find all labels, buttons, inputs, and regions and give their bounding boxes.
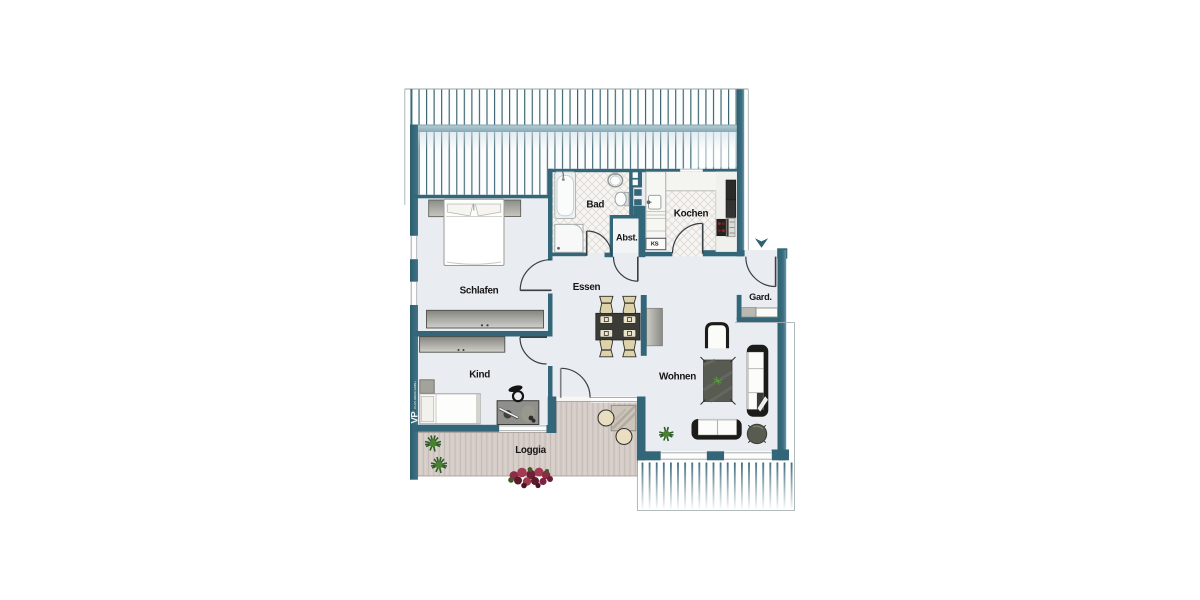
svg-text:Loggia: Loggia: [515, 445, 546, 456]
svg-text:Wohnen: Wohnen: [659, 371, 696, 382]
svg-text:Kochen: Kochen: [674, 209, 709, 220]
svg-text:Gard.: Gard.: [749, 292, 772, 302]
svg-text:Kind: Kind: [469, 370, 490, 381]
svg-text:PLAN·WERK GMBH: PLAN·WERK GMBH: [413, 381, 417, 409]
svg-text:VP: VP: [410, 411, 421, 424]
svg-text:Bad: Bad: [586, 200, 604, 211]
svg-text:Abst.: Abst.: [616, 233, 637, 243]
svg-text:Essen: Essen: [573, 282, 601, 293]
svg-text:Schlafen: Schlafen: [460, 285, 499, 296]
svg-text:KS: KS: [651, 242, 659, 248]
